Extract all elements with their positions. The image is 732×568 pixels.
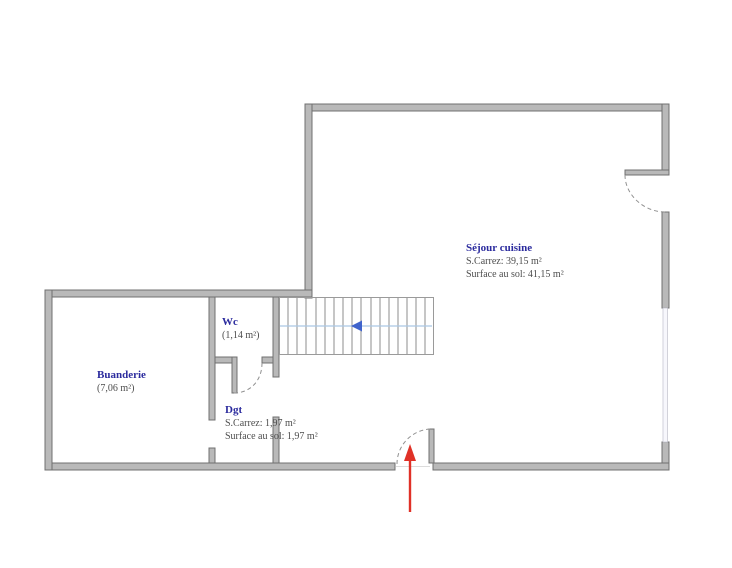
floor-plan: Séjour cuisine S.Carrez: 39,15 m² Surfac… (0, 0, 732, 568)
room-label-buanderie: Buanderie (7,06 m²) (97, 369, 146, 395)
wall-right-middle (662, 212, 669, 308)
wall-main-left (305, 104, 312, 298)
wall-dgt-right-upper (273, 297, 279, 377)
floor-plan-canvas (0, 0, 732, 568)
window-right-wall (663, 308, 668, 442)
room-floor-dgt: Surface au sol: 1,97 m² (225, 430, 318, 443)
room-area-buanderie: (7,06 m²) (97, 382, 146, 395)
wall-bottom-east (433, 463, 669, 470)
room-name-dgt: Dgt (225, 404, 318, 417)
room-name-sejour: Séjour cuisine (466, 242, 564, 255)
wc-door-leaf (232, 357, 237, 393)
wc-door-arc (234, 363, 262, 393)
sejour-door-arc (625, 175, 665, 212)
wall-buanderie-right (209, 297, 215, 420)
wall-annex-left (45, 290, 52, 470)
wall-annex-top (45, 290, 312, 297)
room-label-sejour: Séjour cuisine S.Carrez: 39,15 m² Surfac… (466, 242, 564, 281)
room-carrez-sejour: S.Carrez: 39,15 m² (466, 255, 564, 268)
room-name-wc: Wc (222, 316, 259, 329)
wall-buanderie-stub (209, 448, 215, 463)
room-label-wc: Wc (1,14 m²) (222, 316, 259, 342)
room-carrez-dgt: S.Carrez: 1,97 m² (225, 417, 318, 430)
wall-bottom-west (45, 463, 395, 470)
sejour-door-leaf (625, 170, 669, 175)
room-floor-sejour: Surface au sol: 41,15 m² (466, 268, 564, 281)
stair-direction-left-arrow-icon (351, 321, 362, 332)
wall-wc-bottom-right (262, 357, 273, 363)
wall-right-upper (662, 104, 669, 175)
entrance-up-arrow-icon (404, 444, 416, 512)
room-area-wc: (1,14 m²) (222, 329, 259, 342)
room-label-dgt: Dgt S.Carrez: 1,97 m² Surface au sol: 1,… (225, 404, 318, 443)
wall-main-top (305, 104, 669, 111)
room-name-buanderie: Buanderie (97, 369, 146, 382)
entrance-door-leaf (429, 429, 434, 463)
